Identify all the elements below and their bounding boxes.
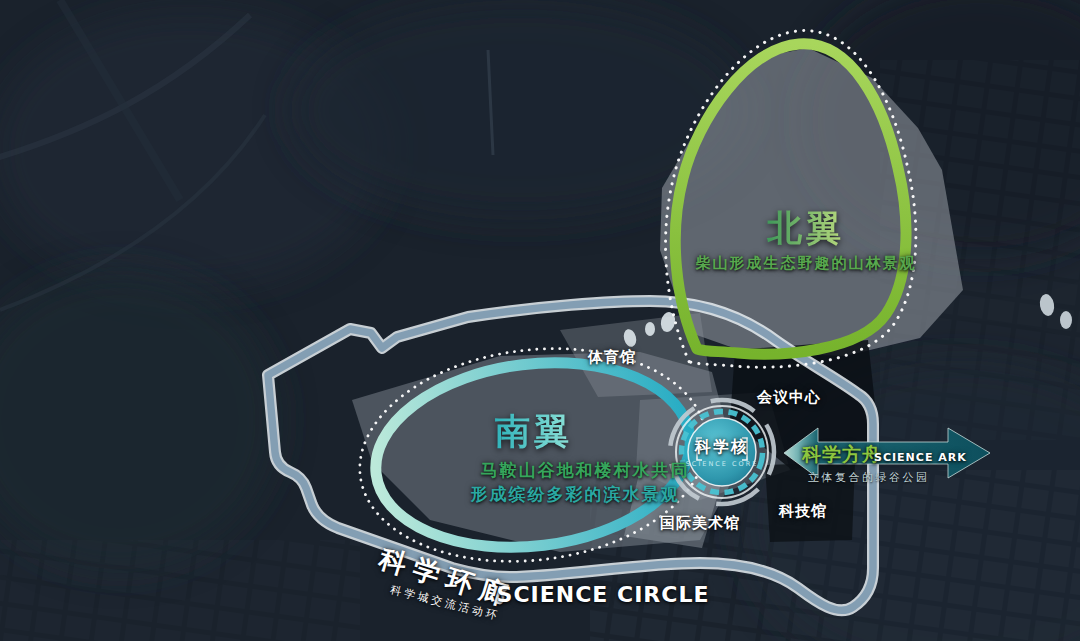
science-ark-title-en: SCIENCE ARK	[874, 451, 967, 464]
science-circle-title-en: SCIENCE CIRCLE	[497, 582, 710, 607]
landmark-gymnasium: 体育馆	[588, 348, 636, 367]
south-wing-subtitle-line2: 形成缤纷多彩的滨水景观	[471, 483, 680, 506]
landmark-art-museum: 国际美术馆	[660, 514, 740, 533]
science-ark-subtitle: 立体复合的绿谷公园	[808, 470, 930, 485]
north-wing-title: 北翼	[767, 205, 845, 252]
landmark-conference-center: 会议中心	[757, 388, 821, 407]
north-wing-subtitle: 柴山形成生态野趣的山林景观	[696, 254, 917, 273]
south-wing-subtitle-line1: 马鞍山谷地和楼村水共同	[481, 459, 690, 482]
science-core-title: 科学核	[695, 437, 749, 458]
south-wing-title: 南翼	[495, 408, 573, 455]
landmark-science-museum: 科技馆	[779, 502, 827, 521]
map-graphics	[0, 0, 1080, 641]
science-core-subtitle: SCIENCE CORE	[686, 460, 759, 468]
site-plan-map: 北翼 柴山形成生态野趣的山林景观 南翼 马鞍山谷地和楼村水共同 形成缤纷多彩的滨…	[0, 0, 1080, 641]
science-ark-title: 科学方舟	[802, 442, 882, 468]
